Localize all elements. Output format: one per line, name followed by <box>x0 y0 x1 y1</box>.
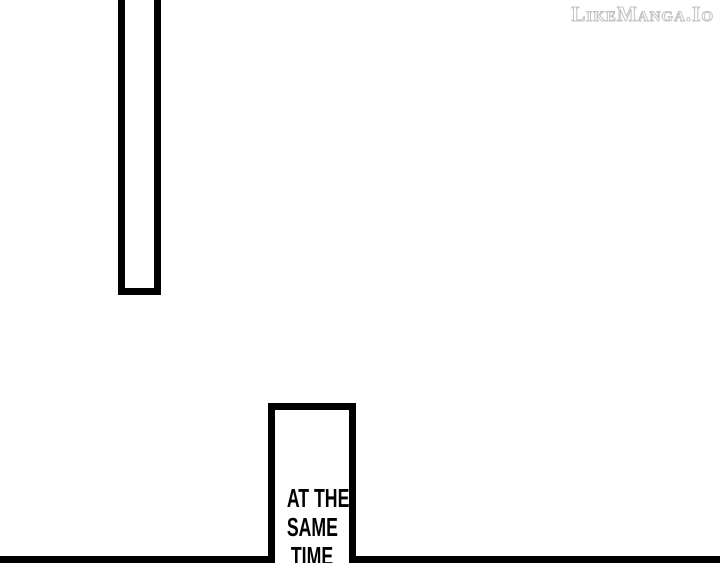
caption-line: SAME <box>287 513 337 542</box>
site-watermark: LikeManga.Io <box>571 2 714 26</box>
panel-border-top-left <box>118 0 161 295</box>
caption-line: AT THE <box>287 484 337 513</box>
caption-box: AT THE SAME TIME <box>268 403 356 563</box>
panel-border-bottom <box>0 556 720 563</box>
caption-text: AT THE SAME TIME <box>287 484 337 563</box>
caption-line: TIME <box>287 542 337 563</box>
manga-page: LikeManga.Io AT THE SAME TIME <box>0 0 720 563</box>
